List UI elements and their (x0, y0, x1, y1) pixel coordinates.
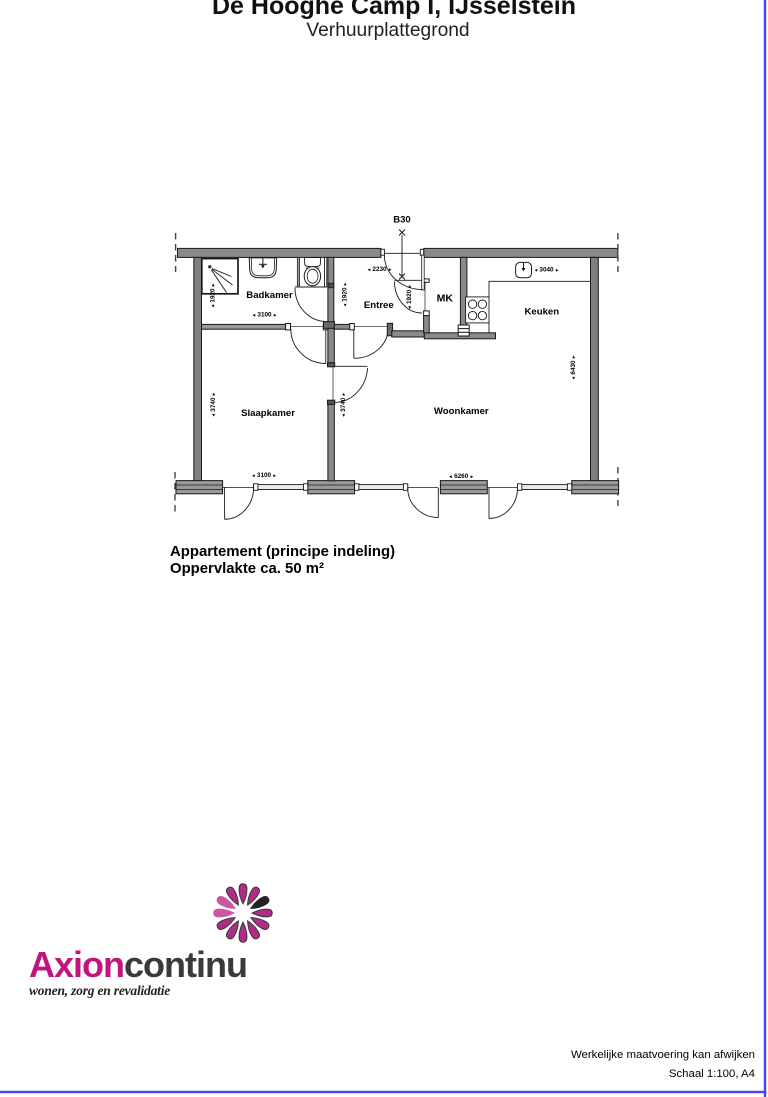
svg-text:◄ 3040 ►: ◄ 3040 ► (534, 267, 560, 274)
svg-text:◄ 3740 ►: ◄ 3740 ► (210, 392, 217, 418)
svg-text:MK: MK (437, 293, 454, 305)
svg-text:◄ 6260 ►: ◄ 6260 ► (448, 473, 474, 480)
svg-text:Entree: Entree (364, 300, 394, 311)
svg-text:◄ 1920 ►: ◄ 1920 ► (406, 284, 413, 310)
svg-text:◄ 1920 ►: ◄ 1920 ► (342, 282, 349, 308)
svg-text:◄ 3740 ►: ◄ 3740 ► (340, 392, 347, 418)
svg-text:◄ 3100 ►: ◄ 3100 ► (251, 472, 277, 479)
svg-text:Woonkamer: Woonkamer (434, 406, 489, 417)
svg-text:Badkamer: Badkamer (246, 290, 293, 301)
svg-text:◄ 6430 ►: ◄ 6430 ► (570, 355, 577, 381)
svg-text:Slaapkamer: Slaapkamer (241, 408, 295, 419)
svg-text:◄ 3100 ►: ◄ 3100 ► (252, 312, 278, 319)
svg-text:Keuken: Keuken (524, 307, 559, 318)
svg-text:B30: B30 (393, 215, 410, 226)
svg-text:◄ 1920 ►: ◄ 1920 ► (210, 283, 217, 309)
svg-text:◄ 2230 ►: ◄ 2230 ► (367, 266, 393, 273)
